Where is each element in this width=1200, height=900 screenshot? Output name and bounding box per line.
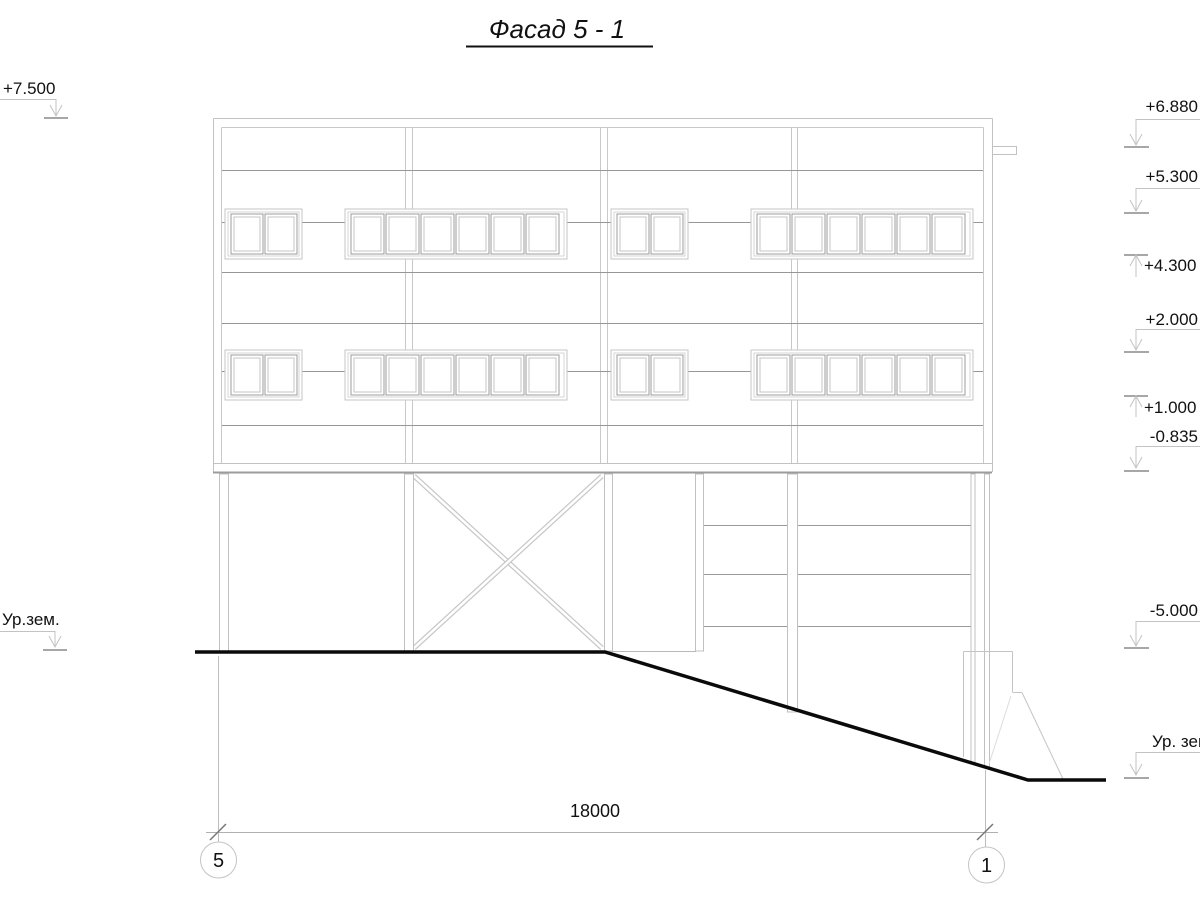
- elevation-label: +4.300: [1144, 256, 1196, 275]
- axis-number: 5: [213, 850, 224, 872]
- drawing-sheet: +7.500 Ур.зем. +6.880 +5.300 +4.300 +2.0…: [0, 0, 1200, 900]
- elevation-mark-right-2000: +2.000: [1124, 310, 1200, 352]
- facade-column-lines: [406, 127, 798, 463]
- window-lower-left-ribbon: [345, 350, 567, 400]
- dimension-18000: 18000: [206, 656, 998, 847]
- elevation-mark-right-4300: +4.300: [1124, 255, 1196, 277]
- roof-drain-outlet: [993, 147, 1017, 155]
- window-lower-left-2pane: [225, 350, 302, 400]
- elevation-mark-left-7500: +7.500: [0, 79, 68, 118]
- stair-wall: [696, 474, 704, 651]
- ground-line: [195, 652, 1106, 780]
- axis-bubble-5: 5: [201, 842, 237, 878]
- elevation-label: +5.300: [1146, 167, 1198, 186]
- axis-number: 1: [981, 855, 992, 877]
- column-axis1-inner: [971, 474, 975, 763]
- elevation-mark-right-ground: Ур. зем.: [1124, 732, 1200, 778]
- axis-bubble-1: 1: [969, 847, 1005, 883]
- elevation-label: -5.000: [1150, 601, 1198, 620]
- elevation-label: +7.500: [3, 79, 55, 98]
- window-upper-right-2pane: [611, 209, 688, 259]
- column-brace-right: [605, 474, 613, 651]
- pilotis-columns: [220, 474, 990, 767]
- stair-rail-lines: [704, 526, 971, 627]
- window-lower-right-2pane: [611, 350, 688, 400]
- drawing-title: Фасад 5 - 1: [466, 14, 653, 47]
- column-brace-left: [405, 474, 414, 651]
- elevation-label: Ур. зем.: [1152, 732, 1200, 751]
- page-title: Фасад 5 - 1: [489, 14, 625, 44]
- column-axis1-outer: [985, 474, 990, 767]
- retaining-wall: [964, 652, 1064, 780]
- window-lower-right-ribbon: [751, 350, 973, 400]
- elevation-label: Ур.зем.: [2, 610, 60, 629]
- facade-elevation-drawing: +7.500 Ур.зем. +6.880 +5.300 +4.300 +2.0…: [0, 0, 1200, 900]
- elevation-mark-right-0835: -0.835: [1124, 427, 1200, 471]
- window-upper-left-2pane: [225, 209, 302, 259]
- cross-bracing: [414, 476, 602, 648]
- elevation-mark-right-5300: +5.300: [1124, 167, 1200, 213]
- window-upper-right-ribbon: [751, 209, 973, 259]
- stair-column: [788, 474, 798, 712]
- facade-outline: [213, 119, 1017, 473]
- elevation-label: -0.835: [1150, 427, 1198, 446]
- elevation-label: +1.000: [1144, 398, 1196, 417]
- elevation-mark-right-1000: +1.000: [1124, 396, 1196, 417]
- elevation-mark-left-ground: Ур.зем.: [0, 610, 67, 650]
- dimension-value: 18000: [570, 801, 620, 821]
- elevation-mark-right-6880: +6.880: [1124, 97, 1200, 147]
- elevation-label: +6.880: [1146, 97, 1198, 116]
- elevation-mark-right-5000: -5.000: [1124, 601, 1200, 648]
- column-axis5: [220, 474, 229, 651]
- elevation-label: +2.000: [1146, 310, 1198, 329]
- window-upper-left-ribbon: [345, 209, 567, 259]
